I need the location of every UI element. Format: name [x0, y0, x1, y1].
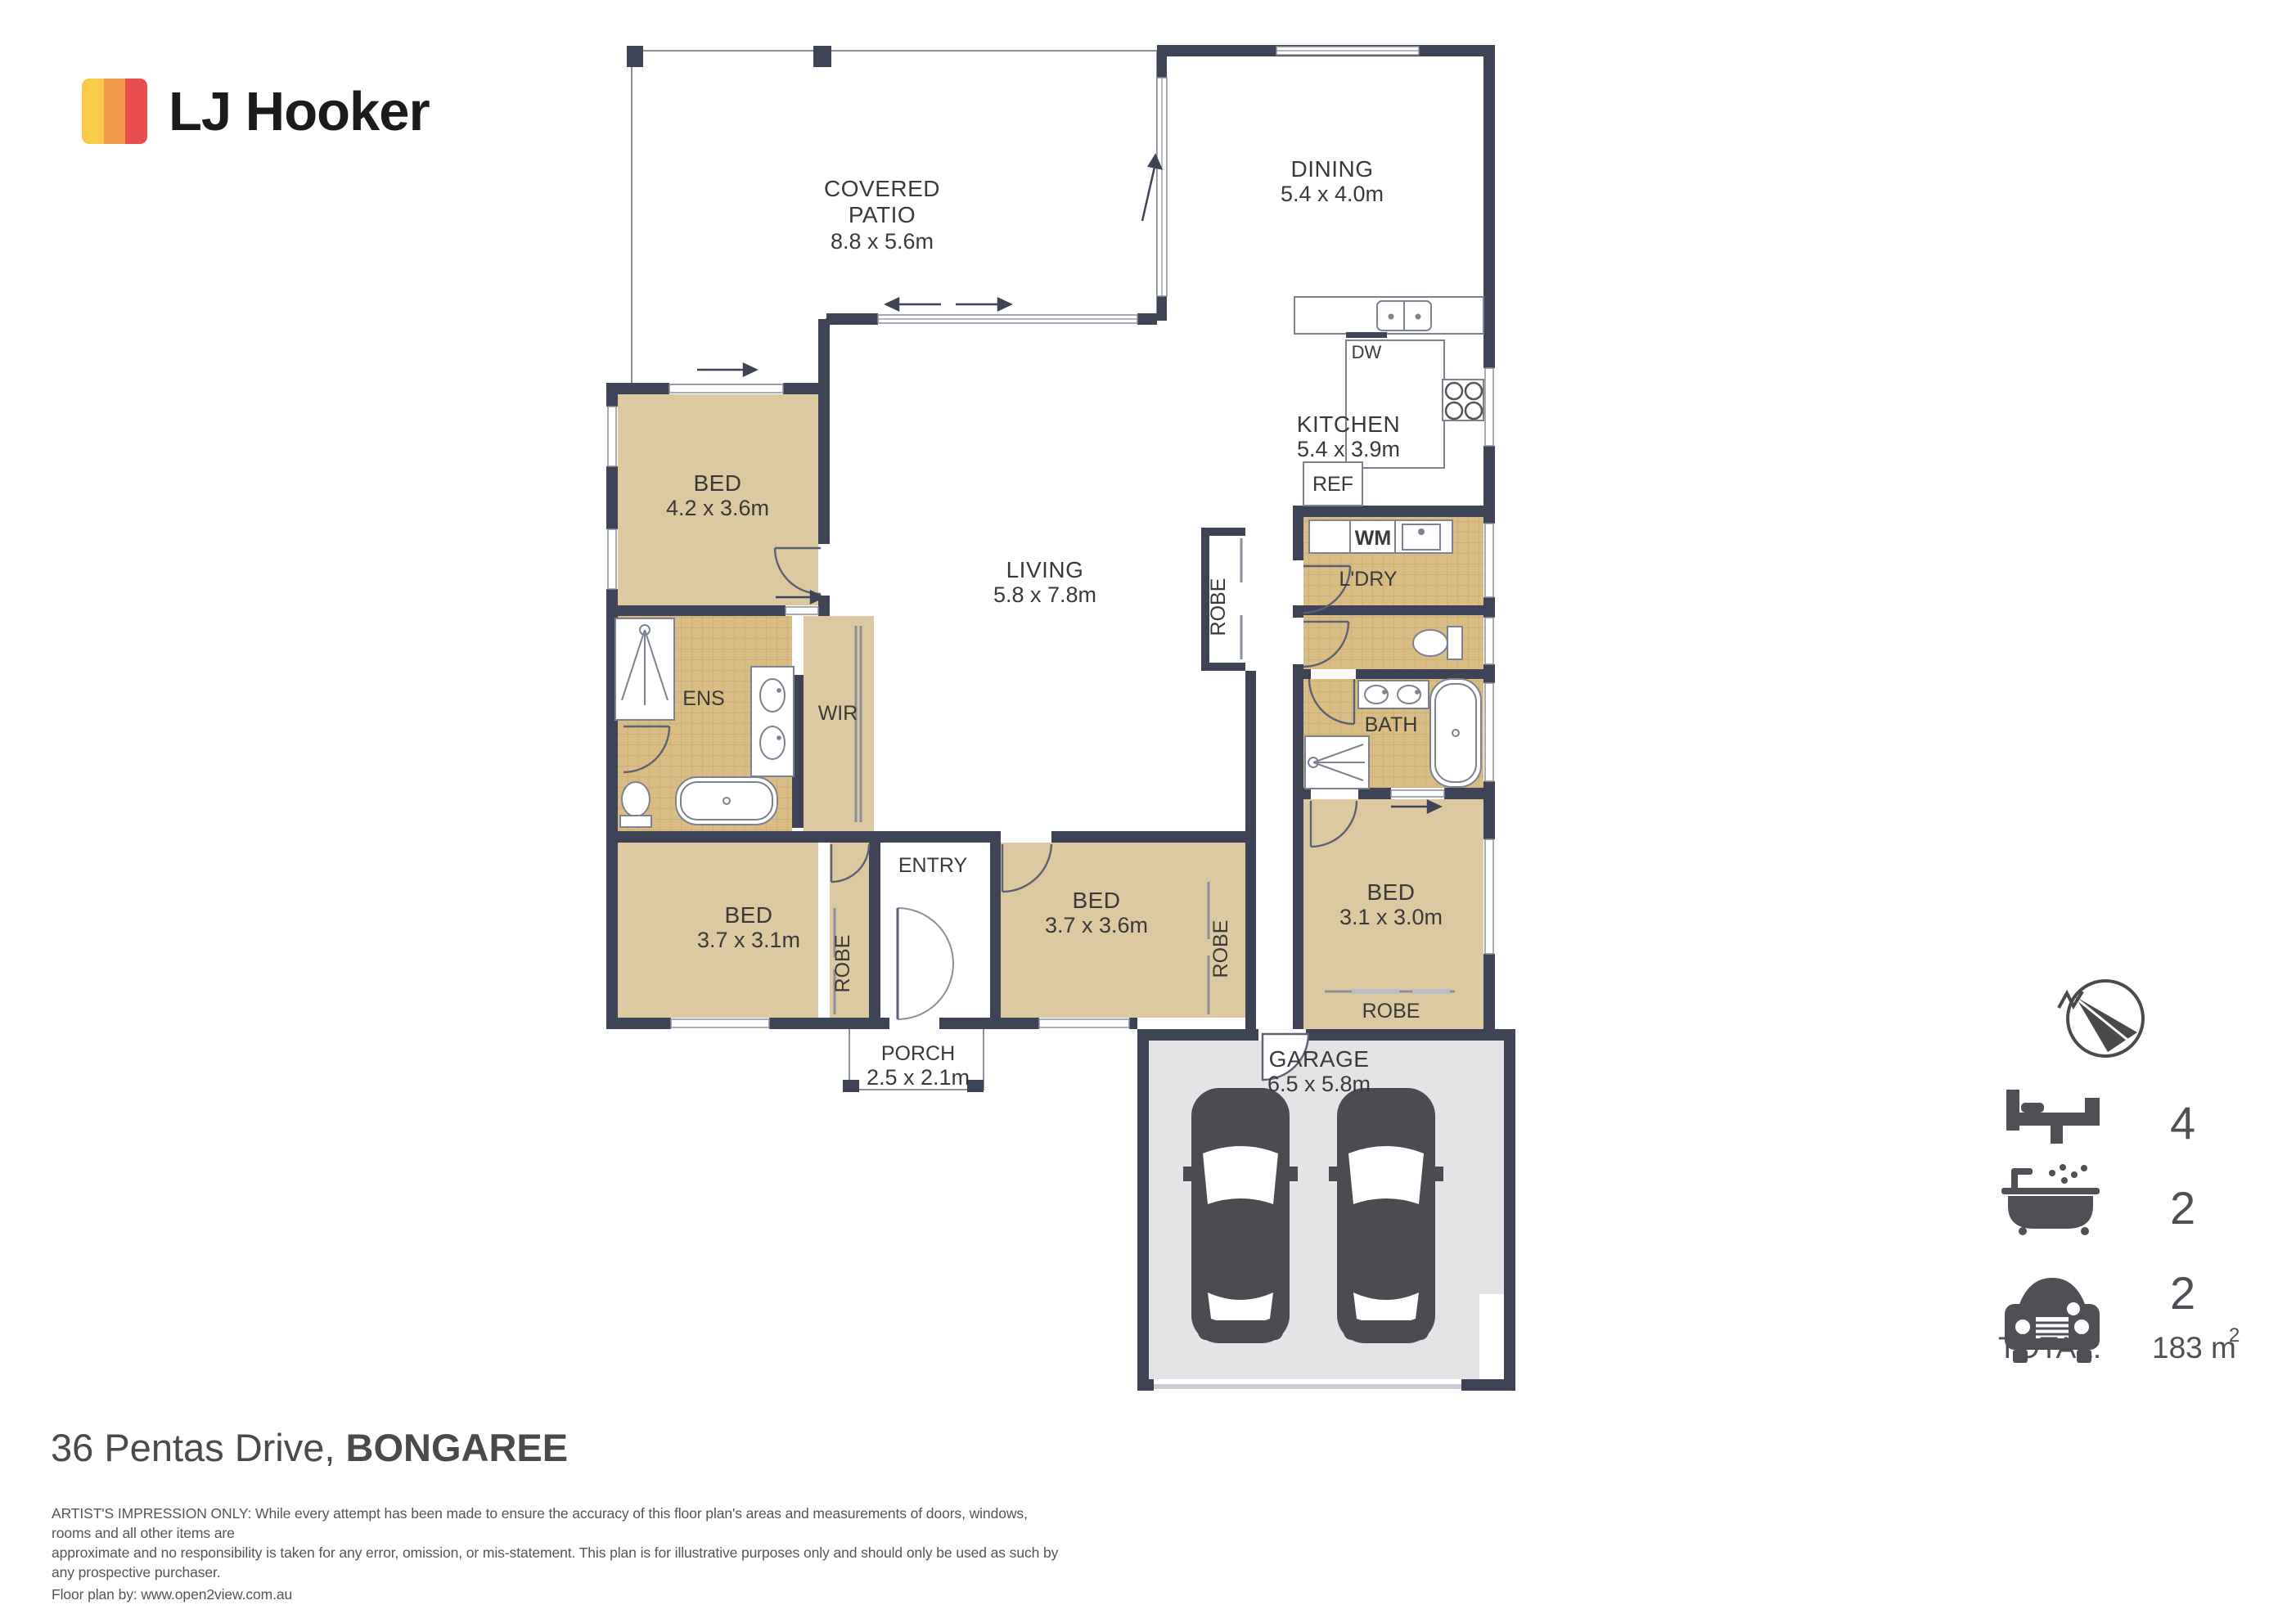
address-street: 36 Pentas Drive,	[51, 1426, 346, 1469]
front-door	[898, 908, 953, 1019]
bed2-robe-label: ROBE	[831, 935, 854, 993]
living-label: LIVING	[1006, 557, 1084, 582]
total-sup: 2	[2229, 1324, 2240, 1347]
bed4-robe-label: ROBE	[1362, 1000, 1420, 1023]
ref-label: REF	[1312, 473, 1353, 496]
disclaimer-line-1: ARTIST'S IMPRESSION ONLY: While every at…	[52, 1504, 1066, 1543]
bed2-dims: 3.7 x 3.1m	[697, 928, 800, 952]
bath-icon	[2001, 1164, 2100, 1235]
bed3-label: BED	[1072, 888, 1120, 913]
toilet-icon-wc	[1413, 627, 1462, 659]
patio-label-2: PATIO	[849, 202, 916, 227]
bed1-label: BED	[693, 470, 741, 496]
ens-label: ENS	[682, 687, 724, 710]
bath-label: BATH	[1365, 713, 1418, 736]
garage-label: GARAGE	[1269, 1046, 1370, 1072]
total-value: 183 m	[2152, 1331, 2236, 1364]
wir-label: WIR	[818, 702, 858, 725]
patio-dims: 8.8 x 5.6m	[831, 229, 934, 254]
porch-dims: 2.5 x 2.1m	[867, 1065, 970, 1090]
floorplan-credit: Floor plan by: www.open2view.com.au	[52, 1585, 1066, 1604]
disclaimer: ARTIST'S IMPRESSION ONLY: While every at…	[52, 1504, 1066, 1604]
garage-dims: 6.5 x 5.8m	[1267, 1072, 1371, 1096]
address: 36 Pentas Drive, BONGAREE	[51, 1425, 568, 1470]
patio-label-1: COVERED	[824, 176, 940, 201]
bed4-dims: 3.1 x 3.0m	[1339, 905, 1443, 929]
legend: 4 2 2 T	[1998, 1090, 2240, 1364]
dining-label: DINING	[1291, 156, 1374, 182]
address-suburb: BONGAREE	[346, 1426, 569, 1469]
bed4-label: BED	[1366, 879, 1415, 905]
kitchen-dims: 5.4 x 3.9m	[1297, 437, 1400, 461]
beds-count: 4	[2170, 1097, 2195, 1149]
cars-count: 2	[2170, 1267, 2195, 1319]
floor-plan: COVERED PATIO 8.8 x 5.6m	[0, 0, 2296, 1623]
living-robe-label: ROBE	[1207, 578, 1230, 636]
bed3-robe-label: ROBE	[1209, 920, 1232, 978]
entry-label: ENTRY	[898, 854, 968, 877]
page: LJ Hooker COVERED PATIO 8.8 x 5.6	[0, 0, 2296, 1623]
total-label: TOTAL:	[1998, 1331, 2101, 1364]
dw-label: DW	[1352, 342, 1382, 362]
compass-icon	[2059, 981, 2143, 1056]
bed1-dims: 4.2 x 3.6m	[666, 496, 769, 520]
bed3-dims: 3.7 x 3.6m	[1045, 913, 1148, 937]
dining-dims: 5.4 x 4.0m	[1281, 182, 1384, 206]
bed-icon	[2006, 1090, 2100, 1144]
porch-label: PORCH	[881, 1042, 955, 1065]
dishwasher-bar	[1346, 332, 1387, 338]
covered-patio: COVERED PATIO 8.8 x 5.6m	[627, 46, 1157, 384]
kitchen-label: KITCHEN	[1297, 411, 1400, 437]
living-dims: 5.8 x 7.8m	[993, 582, 1096, 607]
baths-count: 2	[2170, 1182, 2195, 1234]
bed2-label: BED	[724, 902, 772, 928]
disclaimer-line-2: approximate and no responsibility is tak…	[52, 1543, 1066, 1582]
ldry-label: L'DRY	[1339, 568, 1397, 591]
wm-label: WM	[1355, 527, 1391, 550]
